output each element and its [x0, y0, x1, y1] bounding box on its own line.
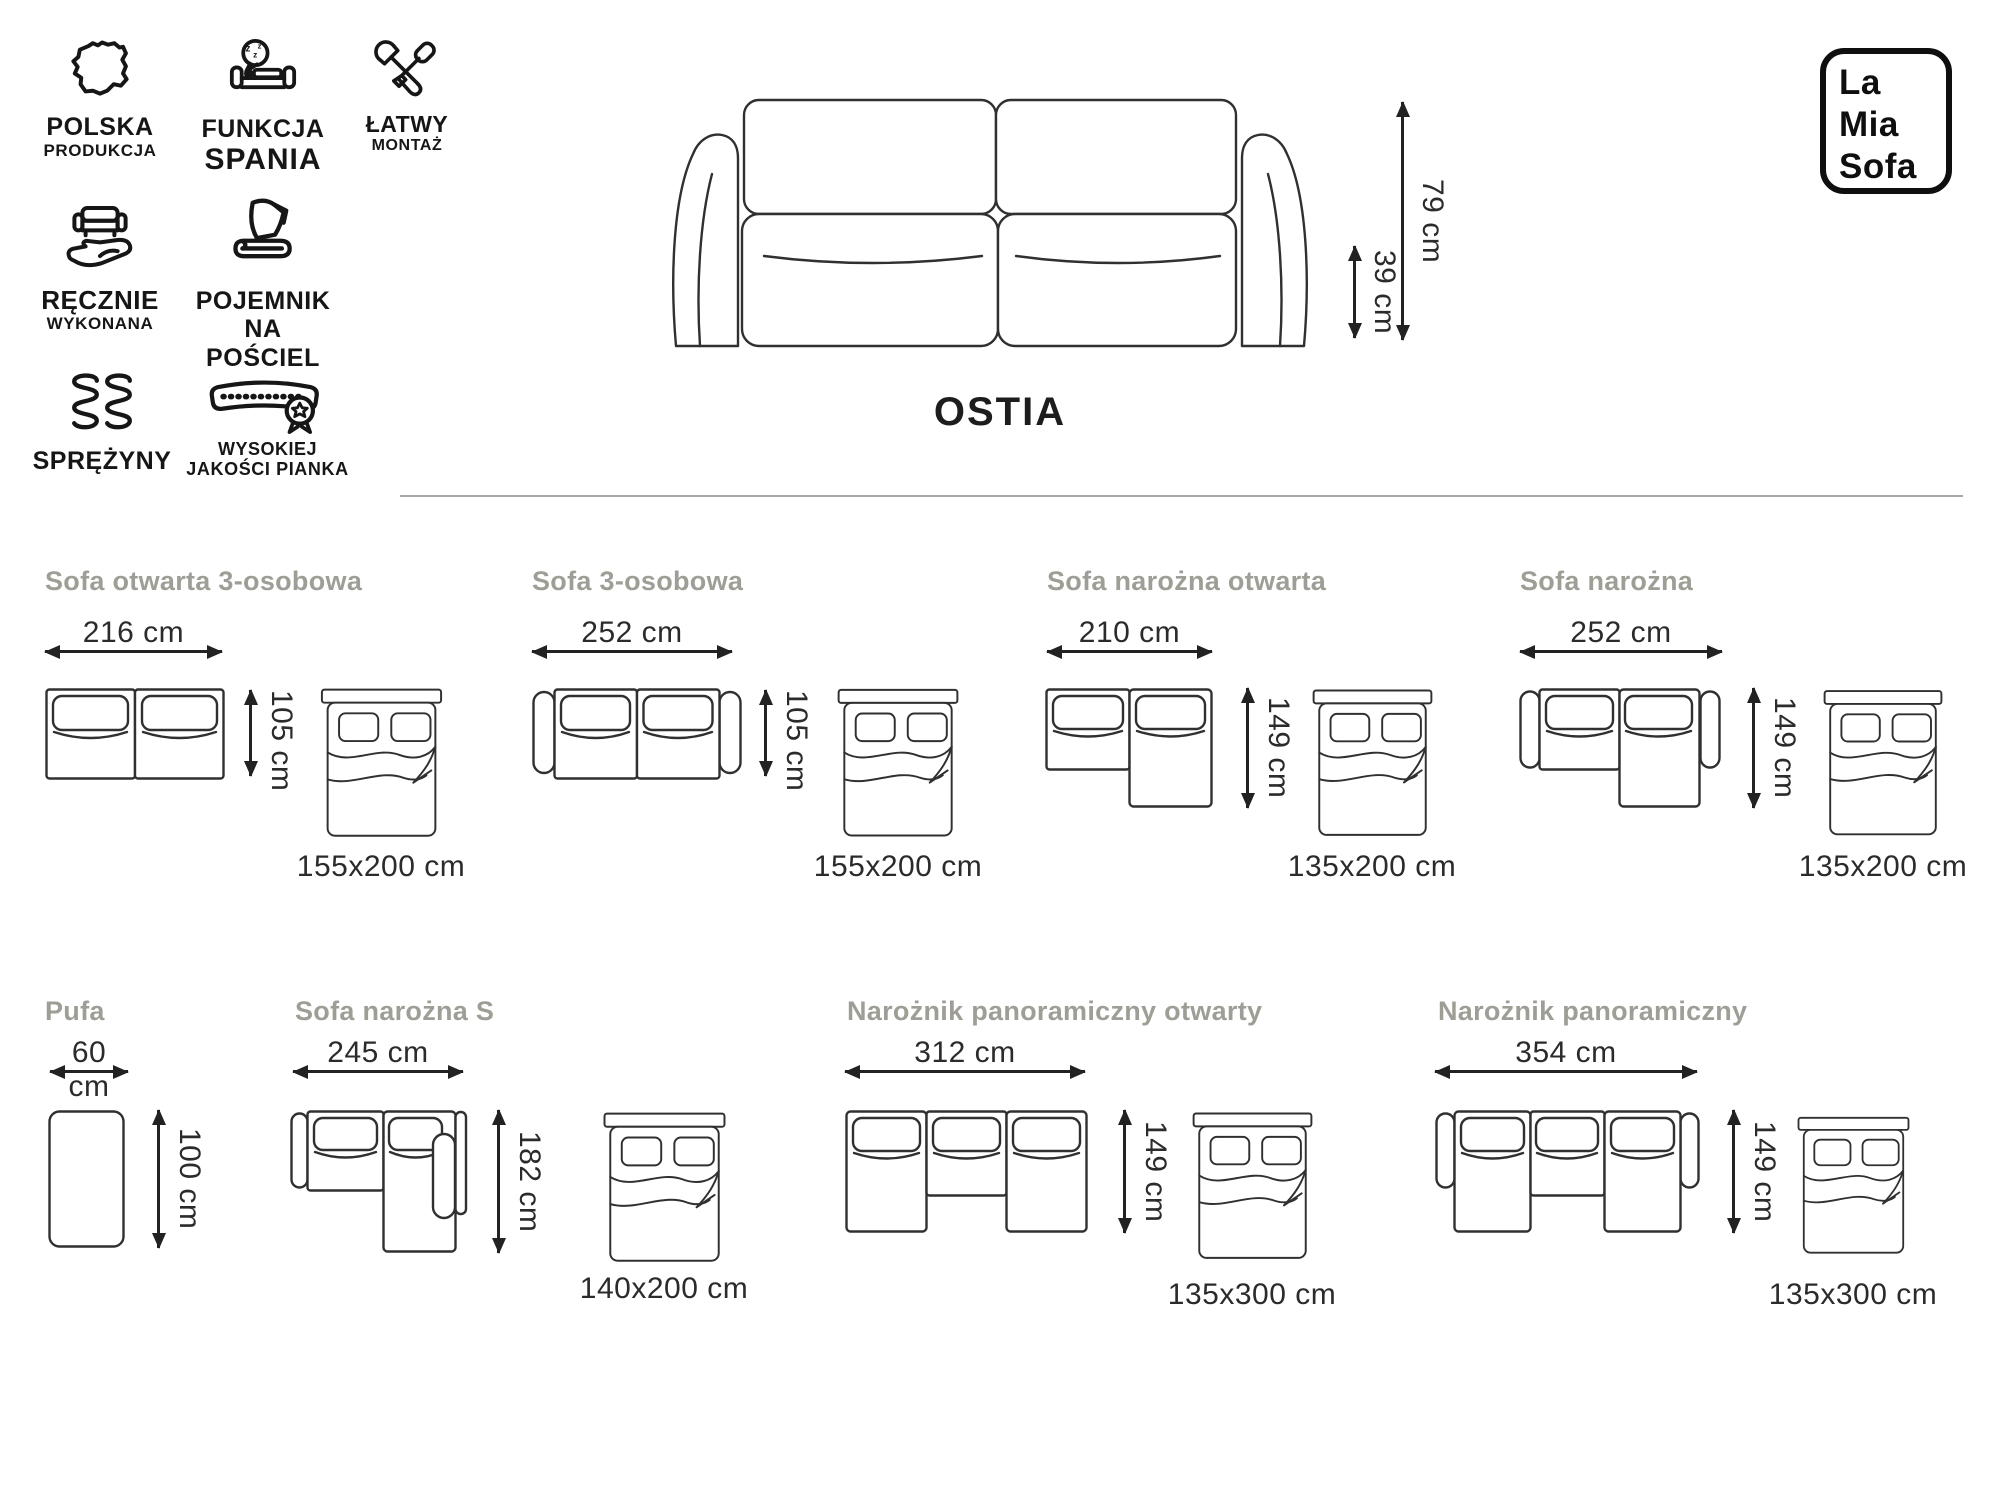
sofa-front-view-drawing	[660, 78, 1320, 348]
config-depth-value: 105 cm	[777, 690, 813, 776]
bed-top-view	[837, 688, 959, 839]
feature-recznie-wykonana: RĘCZNIE WYKONANA	[36, 200, 164, 334]
bed-size-label: 155x200 cm	[798, 850, 998, 884]
config-depth-value: 149 cm	[1136, 1110, 1172, 1233]
depth-dimension-arrow	[1732, 1110, 1735, 1233]
depth-dimension-arrow	[1246, 688, 1249, 808]
config-title: Narożnik panoramiczny otwarty	[847, 996, 1262, 1027]
depth-dimension-arrow	[764, 690, 767, 776]
bed-size-label: 135x300 cm	[1753, 1278, 1953, 1312]
config-width-value: 210 cm	[1047, 616, 1212, 650]
config-width-value: 354 cm	[1435, 1036, 1697, 1070]
product-name: OSTIA	[880, 390, 1120, 435]
brand-logo: La Mia Sofa	[1820, 48, 1952, 194]
depth-dimension-arrow	[1752, 688, 1755, 808]
sofa-top-view	[1519, 688, 1721, 808]
sofa-top-view	[45, 688, 225, 780]
feature-label: ŁATWY	[366, 112, 449, 137]
width-dimension-arrow	[1047, 650, 1212, 653]
config-title: Sofa narożna S	[295, 996, 494, 1027]
feature-label: FUNKCJA	[202, 116, 325, 143]
feature-label: SPRĘŻYNY	[33, 448, 172, 475]
feature-label: RĘCZNIE	[41, 286, 159, 314]
feature-sublabel: MONTAŻ	[372, 137, 443, 155]
config-width-value: 312 cm	[845, 1036, 1085, 1070]
width-dimension-arrow	[293, 1070, 463, 1073]
total-height-arrow	[1401, 102, 1404, 340]
bedding-container-icon	[219, 196, 307, 282]
feature-funkcja-spania: z z z FUNKCJA SPANIA	[196, 34, 330, 178]
feature-label: POJEMNIK	[196, 288, 331, 315]
feature-polska-produkcja: POLSKA PRODUKCJA	[40, 36, 160, 161]
svg-text:z: z	[258, 41, 262, 50]
config-title: Sofa narożna	[1520, 566, 1693, 597]
config-title: Pufa	[45, 996, 105, 1027]
handmade-icon	[57, 200, 143, 280]
feature-sublabel: JAKOŚCI PIANKA	[186, 459, 348, 480]
brand-line: Mia	[1839, 104, 1946, 146]
config-title: Sofa 3-osobowa	[532, 566, 743, 597]
svg-text:z: z	[246, 43, 251, 54]
feature-sublabel: SPANIA	[204, 143, 321, 178]
width-dimension-arrow	[532, 650, 732, 653]
bed-size-label: 155x200 cm	[281, 850, 481, 884]
depth-dimension-arrow	[1123, 1110, 1126, 1233]
sleep-function-icon: z z z	[221, 34, 305, 110]
feature-label: POLSKA	[46, 114, 153, 141]
total-height-value: 79 cm	[1413, 102, 1449, 340]
feature-sublabel: NA POŚCIEL	[190, 315, 336, 373]
springs-icon	[58, 372, 146, 438]
bed-size-label: 135x300 cm	[1152, 1278, 1352, 1312]
config-title: Sofa otwarta 3-osobowa	[45, 566, 362, 597]
feature-latwy-montaz: ŁATWY MONTAŻ	[348, 40, 466, 155]
config-width-value: 252 cm	[1520, 616, 1722, 650]
sofa-top-view	[290, 1110, 467, 1253]
config-depth-value: 100 cm	[170, 1110, 206, 1248]
feature-label: WYSOKIEJ	[218, 440, 317, 459]
bed-top-view	[1312, 688, 1433, 839]
width-dimension-arrow	[1520, 650, 1722, 653]
easy-assembly-icon	[372, 40, 442, 106]
sofa-top-view	[1435, 1110, 1700, 1233]
width-dimension-arrow	[45, 650, 222, 653]
config-depth-value: 149 cm	[1765, 688, 1801, 808]
bed-size-label: 140x200 cm	[564, 1272, 764, 1306]
seat-height-arrow	[1353, 246, 1356, 338]
config-width-value: 216 cm	[45, 616, 222, 650]
poland-map-icon	[61, 36, 139, 108]
config-title: Sofa narożna otwarta	[1047, 566, 1326, 597]
bed-top-view	[1823, 688, 1943, 839]
feature-sublabel: PRODUKCJA	[43, 141, 156, 161]
config-depth-value: 149 cm	[1745, 1110, 1781, 1233]
config-title: Narożnik panoramiczny	[1438, 996, 1747, 1027]
feature-wysokiej-jakosci-pianka: WYSOKIEJ JAKOŚCI PIANKA	[180, 376, 355, 480]
feature-sprezyny: SPRĘŻYNY	[38, 372, 166, 475]
bed-top-view	[1797, 1110, 1910, 1262]
spec-sheet: POLSKA PRODUKCJA z z z FUNKCJA SPANIA	[0, 0, 2000, 1500]
config-depth-value: 182 cm	[510, 1110, 546, 1253]
config-depth-value: 105 cm	[262, 690, 298, 776]
width-dimension-arrow	[845, 1070, 1085, 1073]
quality-foam-icon	[204, 376, 332, 434]
pouf-top-view	[48, 1110, 125, 1248]
config-width-value: 245 cm	[293, 1036, 463, 1070]
bed-size-label: 135x200 cm	[1783, 850, 1983, 884]
feature-sublabel: WYKONANA	[47, 314, 154, 334]
brand-line: La	[1839, 62, 1946, 104]
width-dimension-arrow	[50, 1070, 128, 1073]
sofa-top-view	[845, 1110, 1088, 1233]
section-divider	[400, 495, 1963, 497]
config-width-value: 252 cm	[532, 616, 732, 650]
bed-size-label: 135x200 cm	[1272, 850, 1472, 884]
depth-dimension-arrow	[157, 1110, 160, 1248]
bed-top-view	[1192, 1108, 1313, 1265]
width-dimension-arrow	[1435, 1070, 1697, 1073]
config-depth-value: 149 cm	[1259, 688, 1295, 808]
svg-text:z: z	[253, 50, 257, 60]
bed-top-view	[601, 1112, 728, 1264]
brand-line: Sofa	[1839, 146, 1946, 188]
bed-top-view	[320, 688, 443, 839]
feature-pojemnik-na-posciel: POJEMNIK NA POŚCIEL	[190, 196, 336, 373]
depth-dimension-arrow	[497, 1110, 500, 1253]
sofa-top-view	[1045, 688, 1213, 808]
sofa-top-view	[532, 688, 742, 780]
depth-dimension-arrow	[249, 690, 252, 776]
